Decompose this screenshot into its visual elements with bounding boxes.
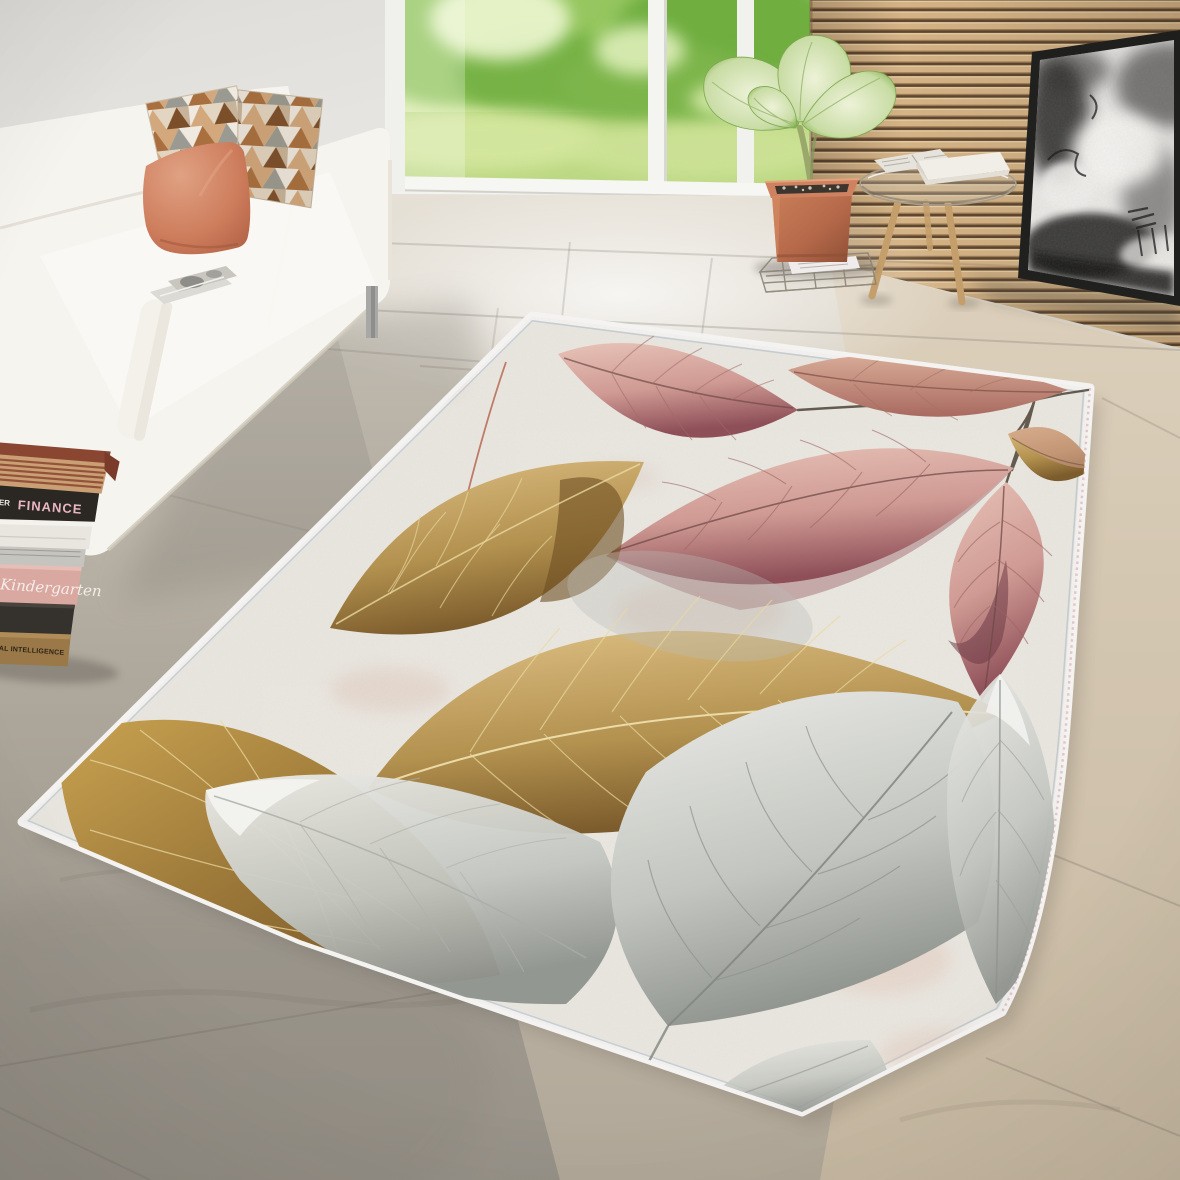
living-room-photo: ARTIFICIAL INTELLIGENCE Kindergarten ALT… — [0, 0, 1180, 1180]
vignette — [0, 0, 1180, 1180]
scene-canvas: ARTIFICIAL INTELLIGENCE Kindergarten ALT… — [0, 0, 1180, 1180]
